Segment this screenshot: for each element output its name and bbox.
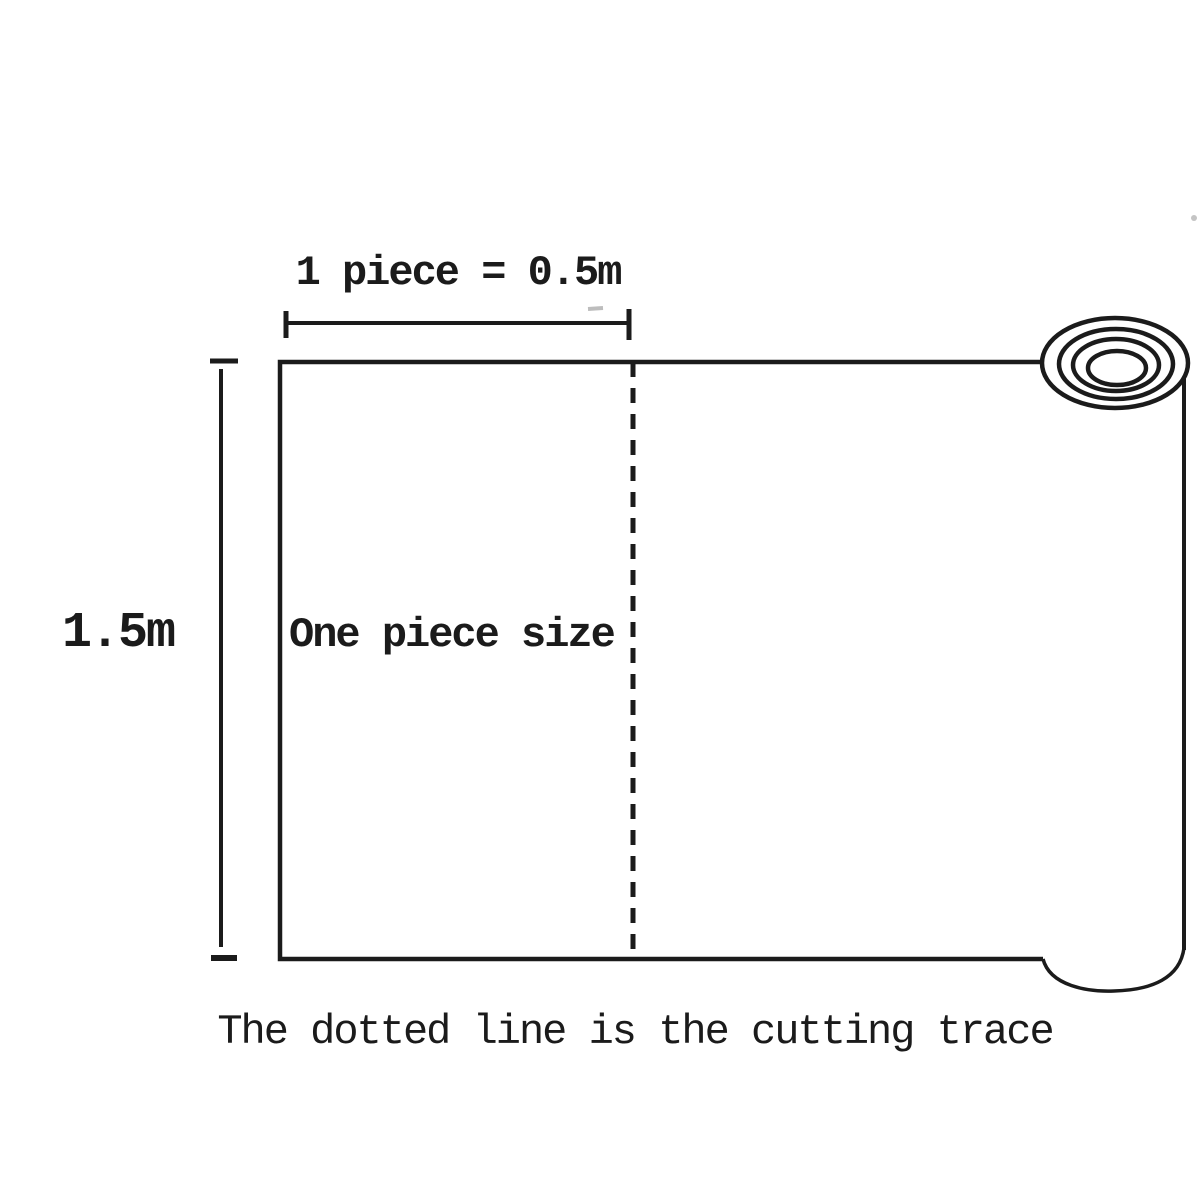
width-measure-line xyxy=(285,309,630,340)
piece-size-label: One piece size xyxy=(289,611,614,659)
scan-artifacts xyxy=(588,215,1197,309)
sheet-bottom-curve xyxy=(1043,948,1184,991)
fabric-roll-icon xyxy=(1042,318,1188,408)
cutting-trace-caption: The dotted line is the cutting trace xyxy=(217,1006,1052,1059)
height-measure-label: 1.5m xyxy=(62,605,174,663)
height-measure-line xyxy=(210,361,238,958)
sheet-outline xyxy=(280,362,1184,991)
width-measure-label: 1 piece = 0.5m xyxy=(285,249,631,297)
diagram-canvas: 1 piece = 0.5m One piece size 1.5m The d… xyxy=(0,0,1200,1200)
